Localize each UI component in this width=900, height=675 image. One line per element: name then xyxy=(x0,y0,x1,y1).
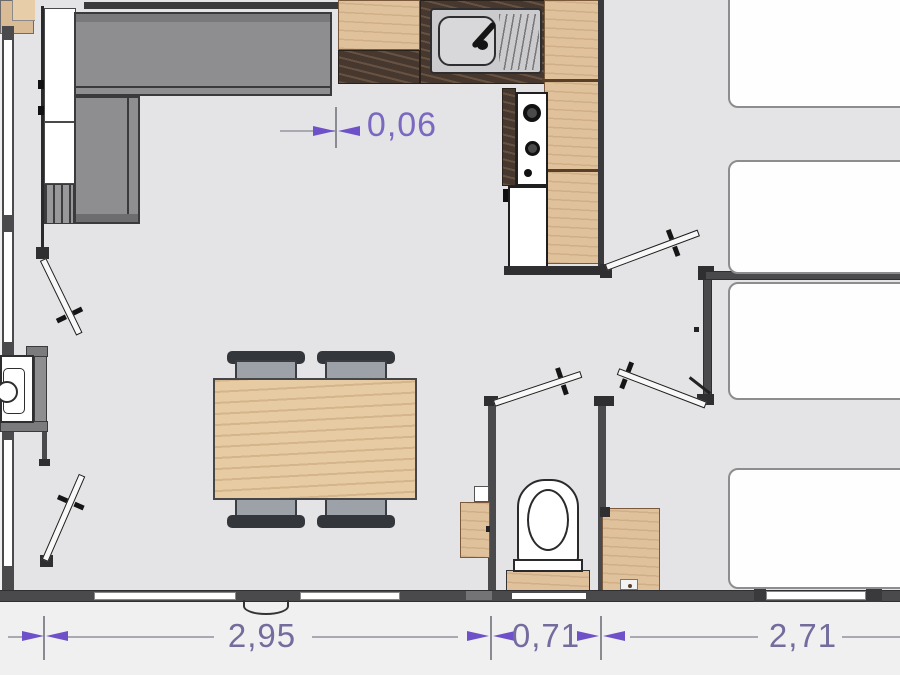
kitchen-counter-front xyxy=(338,50,420,84)
dim-tick xyxy=(600,616,602,660)
kitchen-base-cap xyxy=(504,266,612,275)
burner-small xyxy=(525,141,540,156)
bathroom-window-strip xyxy=(512,593,586,599)
sofa-backrest xyxy=(76,14,330,22)
shelf-line xyxy=(542,79,602,82)
cabinet-corner xyxy=(600,507,610,517)
door-hinge-block xyxy=(594,396,614,406)
cabinet-divider xyxy=(44,121,76,123)
door-hinge-block xyxy=(36,247,49,259)
sofa-edge-line xyxy=(74,86,332,88)
dim-arrow-right-icon xyxy=(22,631,44,641)
chair-back xyxy=(317,515,395,528)
window-frame-cap xyxy=(754,589,766,602)
toilet-seat xyxy=(527,489,569,551)
floorplan-canvas: 0,06 2,95 0,71 2,71 xyxy=(0,0,900,675)
bottom-window xyxy=(94,592,236,600)
dimension-label-right: 2,71 xyxy=(755,617,851,655)
vent-arc xyxy=(243,600,289,615)
bathroom-wall-left xyxy=(488,402,496,600)
shelf-line xyxy=(542,169,602,172)
entry-step-upper xyxy=(12,0,35,21)
dim-arrow-left-icon xyxy=(46,631,68,641)
heater-partition xyxy=(34,356,47,422)
cooktop-surround xyxy=(502,88,516,186)
radiator xyxy=(44,184,74,224)
sofa-arm xyxy=(74,96,140,224)
dim-line xyxy=(66,636,214,638)
cabinet-handle xyxy=(486,526,490,532)
sofa-arm-line xyxy=(127,96,129,224)
window-frame-cap xyxy=(866,589,882,602)
left-window-top xyxy=(4,40,12,215)
dim-arrow-right-icon xyxy=(313,126,335,136)
kitchen-wall xyxy=(598,0,604,266)
left-window-bottom xyxy=(4,440,12,566)
wall-stub xyxy=(42,432,47,462)
bottom-window xyxy=(766,591,866,600)
cabinet-knob xyxy=(628,584,632,588)
fridge xyxy=(508,186,548,268)
dim-line xyxy=(8,636,22,638)
bottom-window xyxy=(300,592,400,600)
kitchen-cabinet-top xyxy=(338,0,420,50)
left-window-middle xyxy=(4,232,12,342)
dim-arrow-left-icon xyxy=(338,126,360,136)
top-wall xyxy=(84,2,338,9)
burner-large xyxy=(523,104,541,122)
dim-line xyxy=(630,636,758,638)
dim-line xyxy=(312,636,458,638)
chair-back xyxy=(227,515,305,528)
kitchen-tall-unit xyxy=(544,0,600,264)
dimension-label-gap: 0,06 xyxy=(360,106,444,145)
wall-end-cap xyxy=(39,459,50,466)
sofa-arm-cap xyxy=(76,214,138,222)
dim-tick xyxy=(335,107,337,148)
dim-tick xyxy=(490,616,492,660)
dimension-label-middle: 0,71 xyxy=(498,617,594,655)
bed xyxy=(728,282,900,400)
sink-drainer xyxy=(499,14,539,70)
cooktop-knob xyxy=(524,169,532,177)
sofa-horizontal xyxy=(74,12,332,96)
toilet-hinge-plate xyxy=(513,559,583,572)
cabinet-box xyxy=(474,486,489,502)
dimension-label-left: 2,95 xyxy=(214,617,310,655)
bed xyxy=(728,0,900,108)
bed xyxy=(728,160,900,274)
faucet-base xyxy=(477,40,488,50)
bed xyxy=(728,468,900,589)
sink-bowl xyxy=(438,16,496,66)
dining-table xyxy=(213,378,417,500)
wall-dot xyxy=(694,327,699,332)
tall-cabinet xyxy=(44,8,76,184)
dim-arrow-right-icon xyxy=(467,631,489,641)
fridge-handle xyxy=(503,189,508,202)
hallway-wall xyxy=(703,280,712,400)
threshold xyxy=(466,591,492,600)
dim-arrow-left-icon xyxy=(603,631,625,641)
